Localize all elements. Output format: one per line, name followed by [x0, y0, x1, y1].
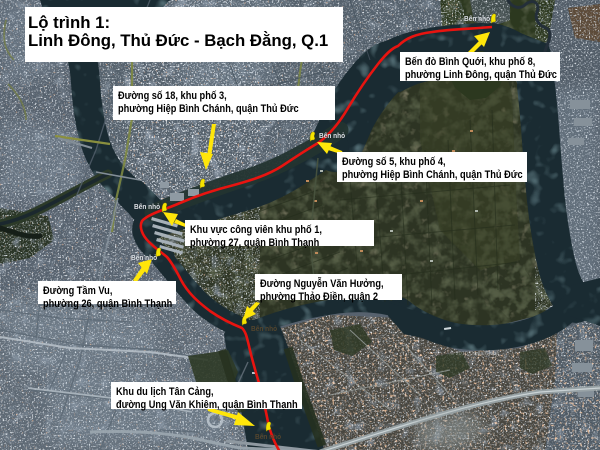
svg-text:© 2010 DigitalGlobe: © 2010 DigitalGlobe — [450, 350, 499, 357]
